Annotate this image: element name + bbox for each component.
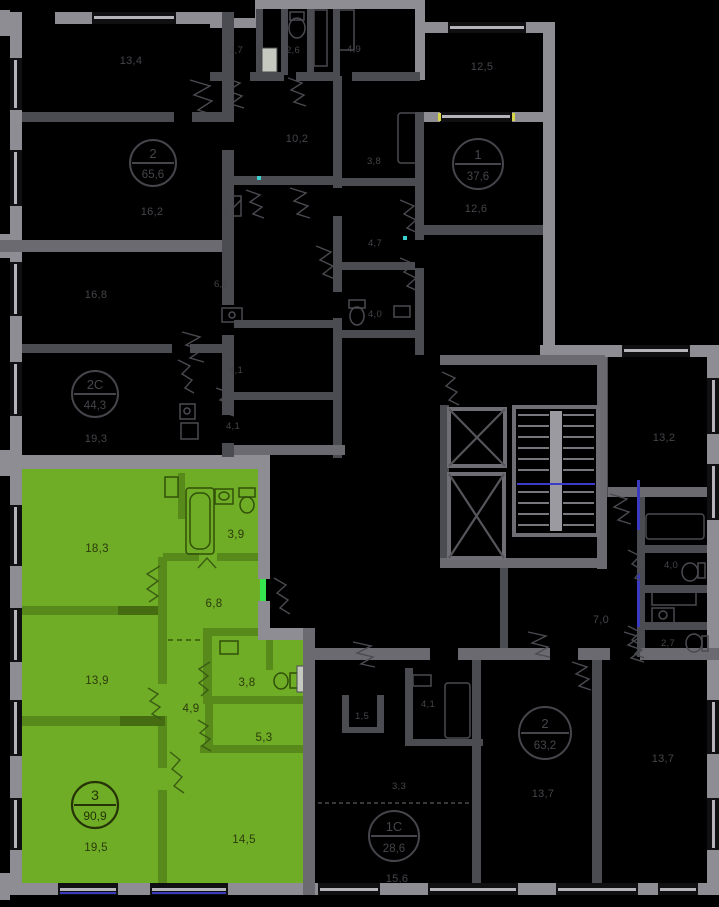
apartment-stamp[interactable]: 2 63,2 xyxy=(519,707,571,759)
room-area-label: 14,5 xyxy=(232,834,256,846)
room-area-label: 19,5 xyxy=(84,842,108,854)
stamp-total-area: 65,6 xyxy=(142,169,164,181)
room-area-label: 13,4 xyxy=(120,55,143,67)
stamp-rooms-count: 1 xyxy=(474,147,481,162)
stamp-total-area: 28,6 xyxy=(383,843,405,855)
room-area-label: 2,6 xyxy=(286,45,300,56)
room-area-label: 6,8 xyxy=(206,598,223,610)
room-area-label: 6,2 xyxy=(214,279,228,290)
room-area-label: 4,1 xyxy=(421,699,435,710)
stamp-total-area: 37,6 xyxy=(467,171,489,183)
room-area-label: 2,7 xyxy=(229,45,243,56)
room-area-label: 4,7 xyxy=(368,238,382,249)
stamp-rooms-count: 2С xyxy=(87,377,104,392)
room-area-label: 4,1 xyxy=(229,365,243,376)
stamp-rooms-count: 3 xyxy=(91,787,99,803)
room-area-label: 4,9 xyxy=(183,703,200,715)
room-area-label: 15,6 xyxy=(386,873,409,885)
entry-door-highlight[interactable] xyxy=(260,578,266,602)
selected-apartment-stamp[interactable]: 3 90,9 xyxy=(72,782,118,828)
room-area-label: 3,8 xyxy=(367,156,381,167)
room-area-label: 1,5 xyxy=(355,711,369,722)
apartment-stamp[interactable]: 1 37,6 xyxy=(453,139,503,189)
room-area-label: 2,7 xyxy=(661,638,675,649)
room-area-label: 12,5 xyxy=(471,61,494,73)
room-area-label: 12,6 xyxy=(465,203,488,215)
staircase-icon xyxy=(514,407,598,535)
stamp-total-area: 90,9 xyxy=(83,809,107,823)
floor-plan-page: 18,3 3,9 6,8 13,9 3,8 4,9 5,3 19,5 14,5 … xyxy=(0,0,719,907)
room-area-label: 4,0 xyxy=(368,309,382,320)
apartment-stamp[interactable]: 2 65,6 xyxy=(130,140,176,186)
room-area-label: 10,2 xyxy=(286,133,309,145)
room-area-label: 3,8 xyxy=(239,677,256,689)
stamp-total-area: 63,2 xyxy=(534,740,556,752)
room-area-label: 4,9 xyxy=(347,44,361,55)
room-area-label: 18,3 xyxy=(85,543,109,555)
door-leaf xyxy=(262,48,277,72)
stamp-total-area: 44,3 xyxy=(84,400,106,412)
room-area-label: 13,7 xyxy=(532,788,555,800)
stamp-rooms-count: 2 xyxy=(149,146,156,161)
apartment-stamp[interactable]: 1С 28,6 xyxy=(369,811,419,861)
room-area-label: 4,0 xyxy=(664,560,678,571)
room-area-label: 16,8 xyxy=(85,289,108,301)
room-area-label: 19,3 xyxy=(85,433,108,445)
room-area-label: 16,2 xyxy=(141,206,164,218)
room-area-label: 13,7 xyxy=(652,753,675,765)
floor-plan: 18,3 3,9 6,8 13,9 3,8 4,9 5,3 19,5 14,5 … xyxy=(0,0,719,907)
room-area-label: 13,2 xyxy=(653,432,676,444)
room-area-label: 3,9 xyxy=(228,529,245,541)
room-area-label: 3,3 xyxy=(392,781,406,792)
stamp-rooms-count: 2 xyxy=(541,716,548,731)
room-area-label: 13,9 xyxy=(85,675,109,687)
room-area-label: 5,3 xyxy=(256,732,273,744)
apartment-stamp[interactable]: 2С 44,3 xyxy=(72,371,118,417)
elevator-shaft-icon xyxy=(449,409,505,558)
room-area-label: 4,1 xyxy=(226,421,240,432)
stamp-rooms-count: 1С xyxy=(386,819,403,834)
room-area-label: 7,0 xyxy=(593,614,609,626)
